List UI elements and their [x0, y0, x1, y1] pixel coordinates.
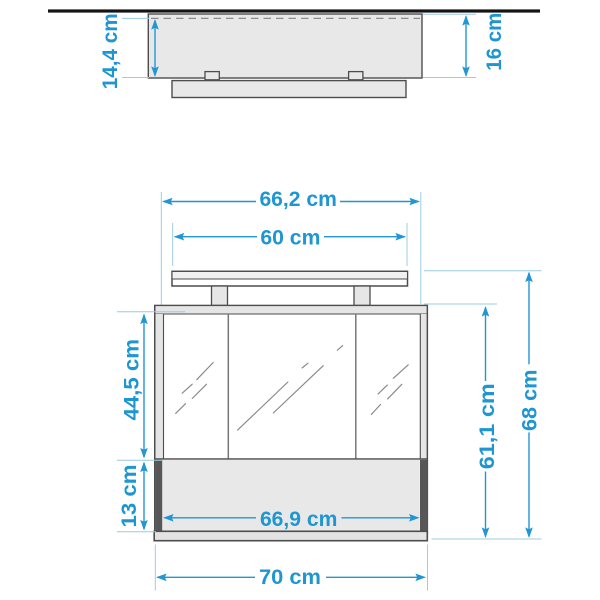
svg-text:60 cm: 60 cm [260, 225, 320, 249]
svg-text:68 cm: 68 cm [518, 370, 542, 432]
svg-text:66,9 cm: 66,9 cm [260, 507, 338, 531]
svg-text:13 cm: 13 cm [117, 465, 141, 528]
svg-text:44,5 cm: 44,5 cm [120, 339, 144, 421]
svg-text:70 cm: 70 cm [259, 565, 321, 589]
svg-text:61,1 cm: 61,1 cm [475, 383, 499, 469]
svg-text:14,4 cm: 14,4 cm [98, 13, 122, 89]
svg-text:66,2 cm: 66,2 cm [259, 187, 337, 211]
svg-text:16 cm: 16 cm [482, 13, 506, 71]
